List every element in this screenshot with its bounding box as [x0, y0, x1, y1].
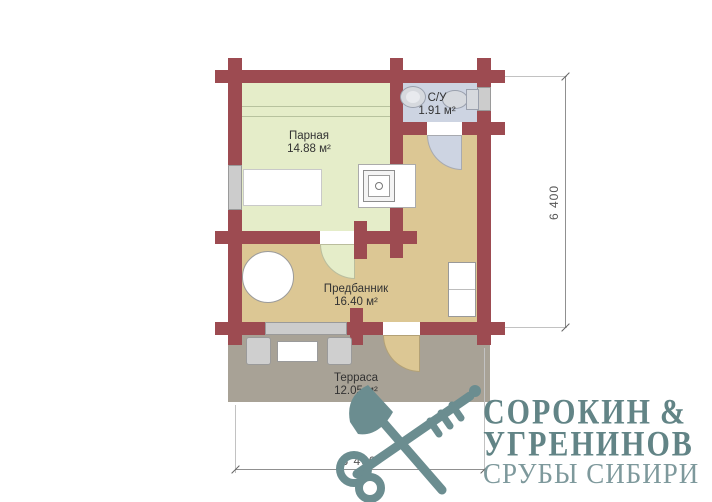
- steam-room-name: Парная: [289, 130, 329, 142]
- window-bathroom-right-wall: [477, 87, 491, 111]
- height-dimension-text: 6 400: [547, 186, 561, 220]
- steam-room-label: Парная 14.88 м²: [287, 130, 331, 155]
- steam-room-area: 14.88 м²: [287, 143, 331, 155]
- wall-log-crossing-middle-door: [354, 221, 367, 259]
- bathroom-label: С/У 1.91 м²: [418, 92, 455, 117]
- wall-top: [215, 70, 505, 83]
- wall-bottom-left-segment: [215, 322, 265, 335]
- dressing-room-area: 16.40 м²: [334, 296, 378, 308]
- terrace-chair-left: [246, 337, 271, 365]
- cabinet-shelf-line: [449, 289, 475, 290]
- floor-plan-canvas: Парная 14.88 м² С/У 1.91 м² Предбанник 1…: [0, 0, 712, 502]
- bench-tier-line-1: [242, 106, 390, 107]
- window-left-wall: [228, 165, 242, 210]
- steam-room-bench: [243, 169, 322, 206]
- bathroom-name: С/У: [428, 92, 447, 104]
- window-bottom-wall: [265, 322, 347, 335]
- dressing-room-name: Предбанник: [324, 283, 388, 295]
- terrace-table: [277, 341, 318, 362]
- terrace-chair-right: [327, 337, 352, 365]
- bathroom-area: 1.91 м²: [418, 105, 455, 117]
- cabinet-icon: [448, 262, 476, 317]
- wall-bathroom-right-segment: [462, 122, 505, 135]
- wall-bathroom-left-segment: [396, 122, 427, 135]
- wall-interior-vertical: [390, 58, 403, 258]
- bench-tier-line-2: [242, 116, 390, 117]
- stove-core: [368, 175, 390, 197]
- extension-line-top-right: [505, 76, 567, 77]
- wall-bottom-right-segment: [420, 322, 505, 335]
- axe-and-key-logo-icon: [312, 376, 512, 502]
- logo-tagline: СРУБЫ СИБИРИ: [483, 460, 699, 487]
- stove-icon: [358, 164, 416, 208]
- logo-name-line-2: УГРЕНИНОВ: [483, 428, 694, 462]
- round-table-icon: [242, 251, 294, 303]
- dressing-room-label: Предбанник 16.40 м²: [324, 283, 388, 308]
- wall-middle-left-segment: [215, 231, 320, 244]
- extension-line-bottom-left: [235, 405, 236, 473]
- toilet-tank: [466, 89, 479, 110]
- dimension-line-height: [565, 76, 566, 328]
- extension-line-bottom-right: [505, 327, 567, 328]
- stove-body: [363, 170, 395, 202]
- stove-vent: [375, 182, 383, 190]
